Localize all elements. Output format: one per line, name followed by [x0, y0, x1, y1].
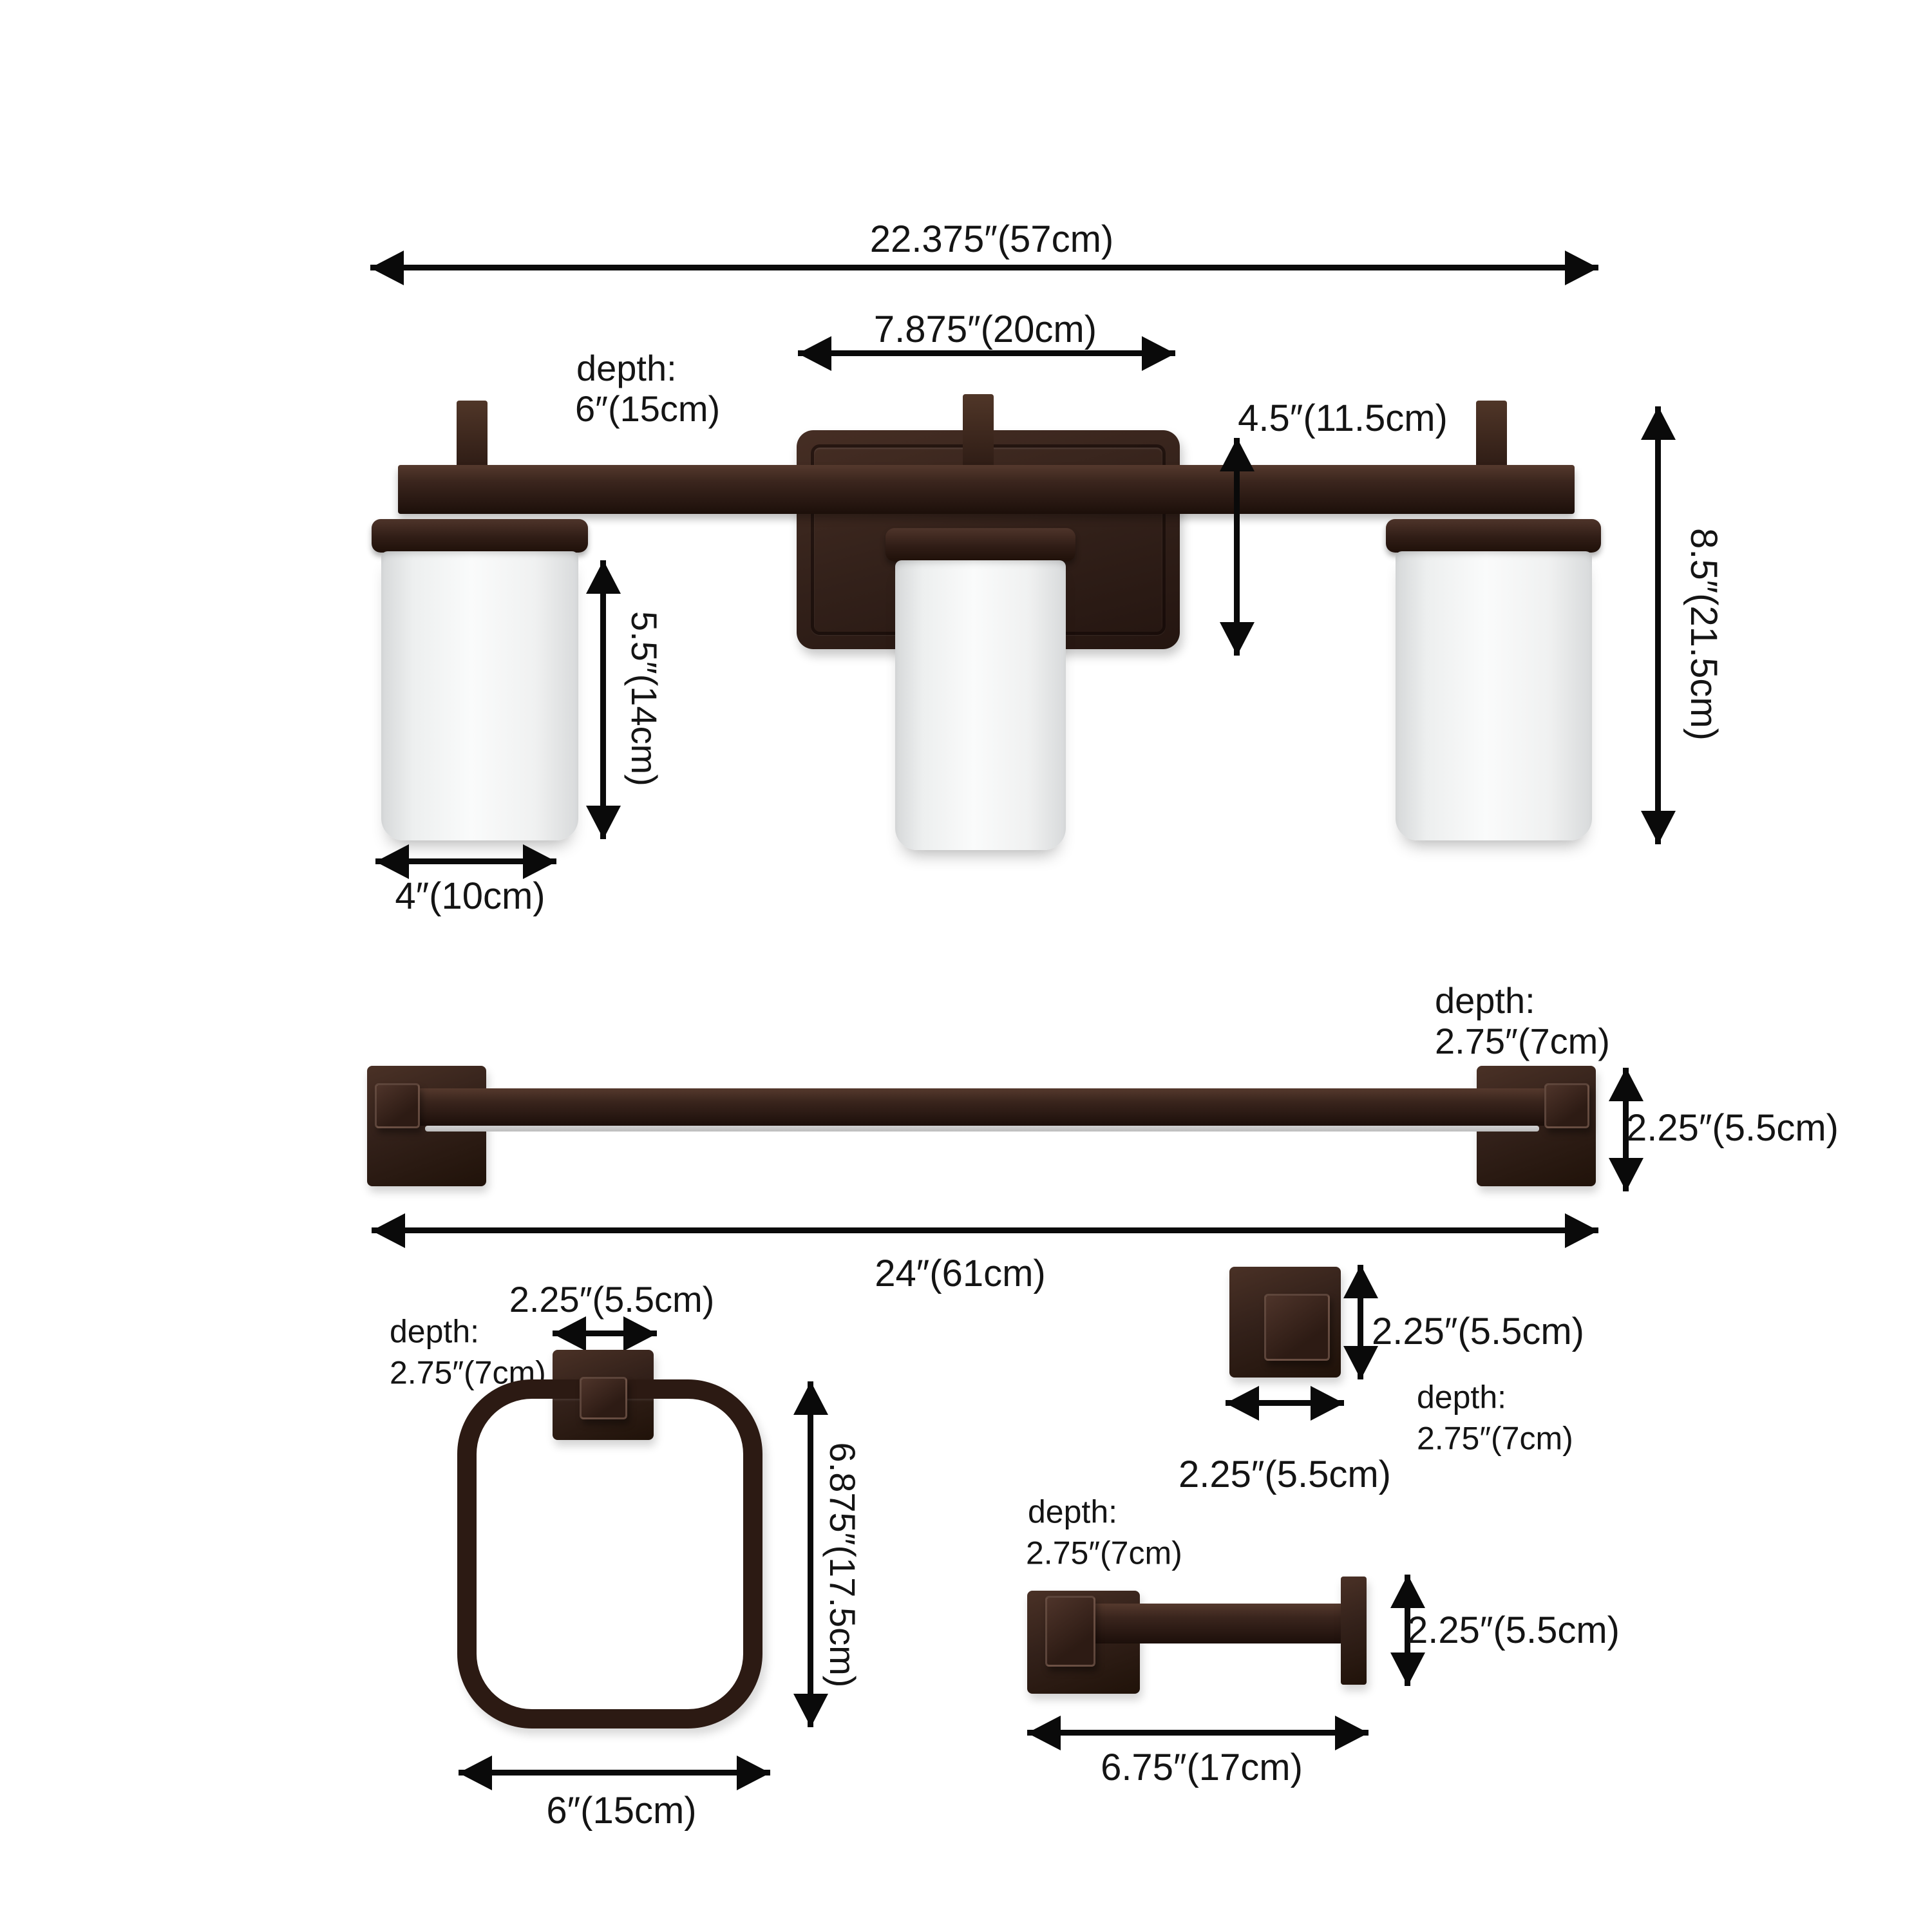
- towel-bar-length-label: 24″(61cm): [875, 1253, 1046, 1294]
- vanity-shade-width-arrow-icon: [375, 858, 556, 864]
- vanity-total-height-label: 8.5″(21.5cm): [1683, 528, 1724, 741]
- vanity-shade-glass-left: [381, 551, 578, 840]
- paper-holder-end-cap: [1341, 1577, 1367, 1685]
- towel-bar-rail: [415, 1088, 1547, 1126]
- hook-height-label: 2.25″(5.5cm): [1372, 1311, 1584, 1352]
- towel-bar-reflection: [425, 1126, 1539, 1132]
- vanity-backplate-width-label: 7.875″(20cm): [874, 309, 1097, 350]
- towel-bar-length-arrow-icon: [372, 1227, 1598, 1233]
- towel-ring-clamp: [580, 1377, 627, 1419]
- vanity-mount-tab-center: [963, 394, 994, 468]
- towel-bar-height-label: 2.25″(5.5cm): [1626, 1108, 1839, 1149]
- paper-holder-clamp: [1045, 1596, 1095, 1667]
- hook-height-arrow-icon: [1358, 1265, 1363, 1379]
- vanity-backplate-width-arrow-icon: [798, 350, 1175, 356]
- vanity-total-height-arrow-icon: [1655, 406, 1661, 844]
- vanity-mount-tab-right: [1476, 401, 1507, 468]
- vanity-depth-value: 6″(15cm): [575, 389, 720, 429]
- vanity-shade-height-arrow-icon: [600, 560, 606, 839]
- towel-ring-height-label: 6.875″(17.5cm): [822, 1443, 862, 1688]
- paper-holder-arm: [1092, 1604, 1343, 1643]
- vanity-overall-width-arrow-icon: [370, 265, 1598, 270]
- towel-bar-depth-label: depth:: [1435, 981, 1535, 1021]
- towel-bar-post-right: [1544, 1083, 1589, 1128]
- paper-holder-height-label: 2.25″(5.5cm): [1407, 1610, 1620, 1651]
- vanity-overall-width-label: 22.375″(57cm): [870, 219, 1113, 260]
- hook-depth-value: 2.75″(7cm): [1417, 1421, 1573, 1457]
- vanity-shade-cap-center: [885, 528, 1075, 562]
- towel-bar-depth-value: 2.75″(7cm): [1435, 1021, 1610, 1061]
- towel-ring-plate-width-label: 2.25″(5.5cm): [509, 1280, 715, 1320]
- vanity-shade-width-label: 4″(10cm): [395, 876, 545, 917]
- towel-ring-plate-width-arrow-icon: [553, 1331, 657, 1336]
- paper-holder-depth-value: 2.75″(7cm): [1026, 1536, 1182, 1571]
- vanity-shade-glass-right: [1396, 551, 1592, 840]
- paper-holder-depth-label: depth:: [1028, 1495, 1117, 1530]
- towel-ring-width-label: 6″(15cm): [546, 1790, 696, 1832]
- vanity-backplate-height-arrow-icon: [1234, 438, 1240, 656]
- vanity-shade-glass-center: [895, 560, 1066, 850]
- vanity-backplate-height-label: 4.5″(11.5cm): [1238, 398, 1448, 439]
- hook-depth-label: depth:: [1417, 1380, 1506, 1416]
- dimension-diagram: 22.375″(57cm) 7.875″(20cm) depth: 6″(15c…: [0, 0, 1932, 1932]
- vanity-shade-cap-right: [1386, 519, 1601, 553]
- hook-knob: [1264, 1294, 1330, 1361]
- vanity-depth-label: depth:: [576, 348, 677, 388]
- hook-width-arrow-icon: [1226, 1400, 1344, 1406]
- vanity-shade-cap-left: [372, 519, 588, 553]
- paper-holder-width-arrow-icon: [1027, 1730, 1368, 1736]
- paper-holder-width-label: 6.75″(17cm): [1101, 1747, 1303, 1788]
- towel-ring-height-arrow-icon: [808, 1381, 813, 1727]
- towel-ring-loop: [457, 1379, 762, 1728]
- vanity-shade-height-label: 5.5″(14cm): [624, 611, 664, 786]
- towel-ring-depth-label: depth:: [390, 1314, 479, 1350]
- hook-width-label: 2.25″(5.5cm): [1179, 1454, 1391, 1495]
- towel-bar-post-left: [375, 1083, 420, 1128]
- vanity-crossbar: [398, 465, 1575, 514]
- towel-ring-width-arrow-icon: [459, 1770, 770, 1776]
- vanity-mount-tab-left: [457, 401, 488, 468]
